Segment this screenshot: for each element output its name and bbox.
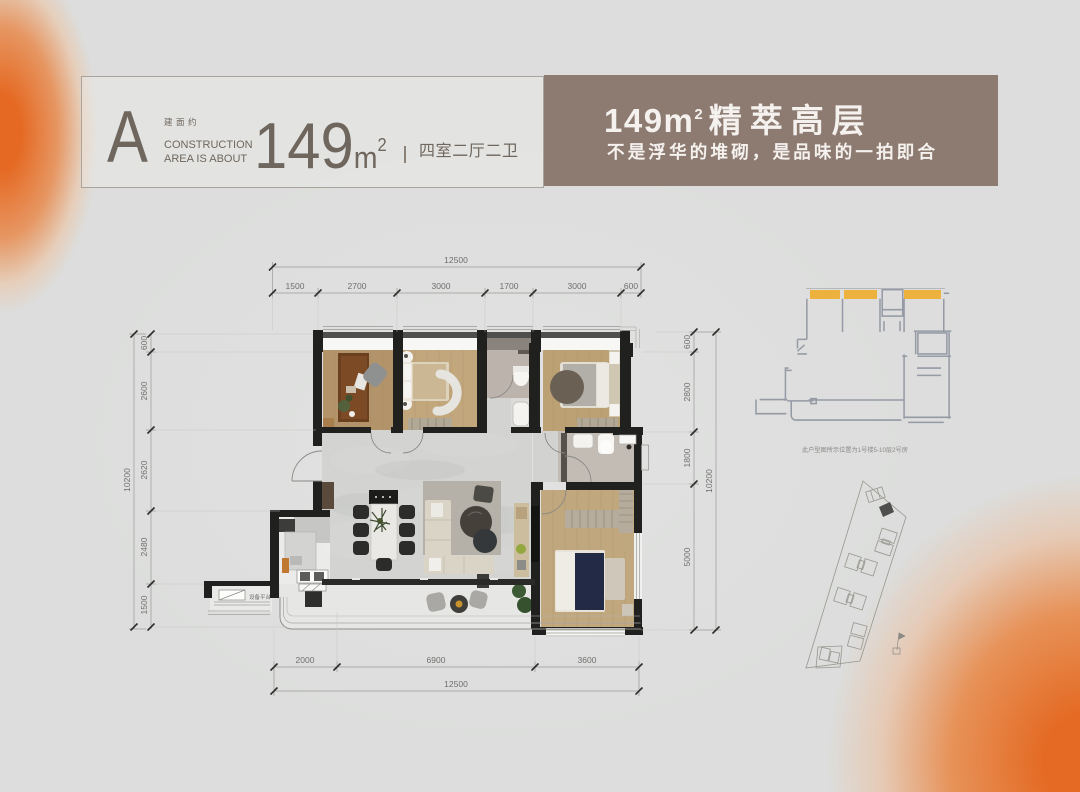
svg-text:12500: 12500 (444, 679, 468, 689)
svg-text:2480: 2480 (139, 537, 149, 556)
svg-text:1500: 1500 (139, 595, 149, 614)
svg-text:600: 600 (139, 336, 149, 350)
svg-text:12500: 12500 (444, 255, 468, 265)
svg-text:600: 600 (682, 335, 692, 349)
svg-text:2800: 2800 (682, 382, 692, 401)
svg-text:600: 600 (624, 281, 638, 291)
svg-text:设备平台: 设备平台 (249, 593, 272, 601)
svg-text:1800: 1800 (682, 448, 692, 467)
svg-text:2600: 2600 (139, 381, 149, 400)
svg-text:3000: 3000 (568, 281, 587, 291)
svg-text:1700: 1700 (500, 281, 519, 291)
svg-text:10200: 10200 (704, 469, 714, 493)
svg-text:5000: 5000 (682, 547, 692, 566)
svg-text:3000: 3000 (432, 281, 451, 291)
svg-text:3600: 3600 (578, 655, 597, 665)
svg-text:6900: 6900 (427, 655, 446, 665)
svg-text:10200: 10200 (122, 468, 132, 492)
svg-text:2620: 2620 (139, 460, 149, 479)
svg-text:1500: 1500 (286, 281, 305, 291)
svg-text:此户型图所示位置为1号楼5-10层2号房: 此户型图所示位置为1号楼5-10层2号房 (802, 446, 908, 454)
svg-text:2700: 2700 (348, 281, 367, 291)
svg-text:2000: 2000 (296, 655, 315, 665)
